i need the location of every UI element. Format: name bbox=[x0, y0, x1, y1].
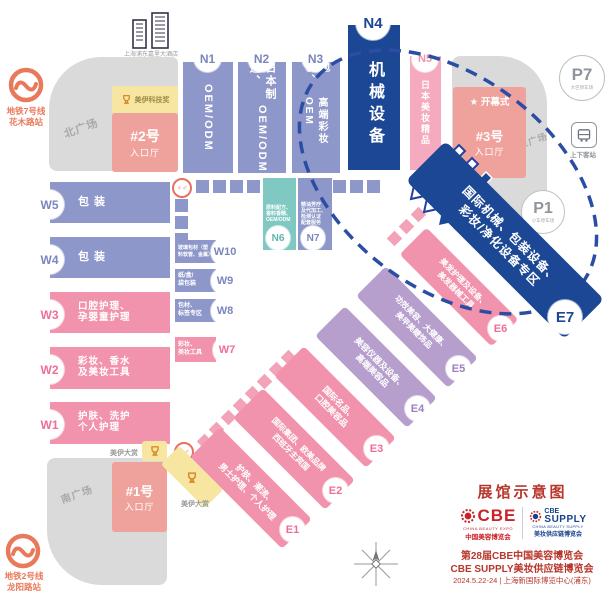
hall-circle-n2: N2 bbox=[248, 45, 275, 72]
exhibition-map: 北广场 南广场 东广场 上海浦东嘉里大酒店 地铁7号线 花木路站 地铁2号线 龙… bbox=[0, 0, 609, 608]
hall-circle-w2: W2 bbox=[35, 355, 64, 384]
booth-diamond bbox=[387, 231, 403, 247]
parking-p1-note: 小车停车场 bbox=[532, 218, 555, 224]
award-grand-box-w bbox=[142, 441, 167, 461]
cbe-supply-logo: CBE SUPPLY CHINA BEAUTY SUPPLY 美妆供应链博览会 bbox=[529, 508, 586, 538]
hall-circle-e2: E2 bbox=[323, 478, 348, 503]
logo-row: CBE CHINA BEAUTY EXPO 中国美容博览会 CBE SUPPLY… bbox=[449, 502, 597, 544]
hall-circle-n1: N1 bbox=[194, 45, 221, 72]
entrance-1-number: #1号 bbox=[112, 481, 167, 500]
booth-square bbox=[350, 180, 363, 193]
hall-bar-w7: 彩妆、 美妆工具 bbox=[175, 337, 216, 362]
hall-circle-e6: E6 bbox=[488, 316, 513, 341]
hall-circle-n7: N7 bbox=[301, 226, 325, 250]
hotel-icon bbox=[130, 11, 172, 49]
entrance-3-label: 入口厅 bbox=[453, 145, 526, 158]
hall-bar-w2: 彩妆、香水 及美妆工具 bbox=[50, 347, 170, 389]
hall-circle-w1: W1 bbox=[35, 410, 64, 439]
cbe-lion-icon bbox=[460, 508, 476, 524]
footer-line3: 2024.5.22-24 | 上海新国际博览中心(浦东) bbox=[436, 575, 608, 586]
trophy-icon bbox=[186, 471, 199, 484]
entrance-hall-2: #2号 入口厅 bbox=[112, 113, 178, 172]
entrance-1-label: 入口厅 bbox=[112, 500, 167, 513]
booth-square bbox=[196, 180, 209, 193]
pickup-zone-icon bbox=[571, 122, 597, 148]
hall-bar-n3: 包装、 高端彩妆OEM bbox=[292, 62, 340, 173]
hall-circle-w10: W10 bbox=[211, 238, 239, 266]
hall-bar-w1: 护肤、洗护 个人护理 bbox=[50, 402, 170, 444]
footer-line2: CBE SUPPLY美妆供应链博览会 bbox=[436, 560, 608, 575]
booth-square bbox=[230, 180, 243, 193]
hall-circle-w8: W8 bbox=[211, 297, 239, 325]
compass-icon bbox=[352, 540, 400, 588]
metro-line2-badge bbox=[5, 533, 41, 569]
hall-circle-n3: N3 bbox=[302, 45, 329, 72]
award-tech-box: 美伊科技奖 bbox=[112, 86, 178, 113]
booth-square bbox=[175, 199, 188, 212]
hall-circle-w9: W9 bbox=[211, 267, 239, 295]
metro-line7-badge bbox=[8, 67, 44, 103]
hall-circle-w4: W4 bbox=[35, 245, 64, 274]
logo-divider bbox=[522, 507, 523, 539]
hall-bar-w8: 包材、 标签专区 bbox=[175, 299, 216, 322]
hall-circle-n4: N4 bbox=[356, 6, 390, 40]
entrance-2-label: 入口厅 bbox=[112, 146, 178, 159]
entrance-hall-1: #1号 入口厅 bbox=[112, 462, 167, 532]
metro-icon bbox=[5, 533, 41, 569]
metro-line2-label: 地铁2号线 龙阳路站 bbox=[0, 571, 48, 593]
hall-circle-e4: E4 bbox=[405, 396, 430, 421]
page-title: 展馆示意图 bbox=[445, 481, 600, 502]
parking-p7: P7 大巴停车场 bbox=[559, 55, 605, 101]
booth-square bbox=[333, 180, 346, 193]
booth-square bbox=[247, 180, 260, 193]
award-grand-label-w: 美伊大赏 bbox=[110, 448, 138, 458]
hall-circle-n6: N6 bbox=[266, 226, 290, 250]
hotel-label: 上海浦东嘉里大酒店 bbox=[116, 49, 186, 58]
trophy-icon bbox=[121, 94, 132, 105]
hall-bar-w3: 口腔护理、 孕婴童护理 bbox=[50, 292, 170, 333]
parking-p7-note: 大巴停车场 bbox=[571, 85, 594, 91]
hall-bar-w4: 包 装 bbox=[50, 237, 170, 278]
hall-circle-e1: E1 bbox=[280, 517, 305, 542]
opening-ceremony-label: ★ 开幕式 bbox=[453, 94, 526, 108]
hall-circle-e7: E7 bbox=[548, 300, 582, 334]
hall-circle-n5: N5 bbox=[412, 46, 438, 72]
booth-diamond bbox=[399, 219, 415, 235]
hall-circle-w5: W5 bbox=[35, 190, 64, 219]
metro-icon bbox=[8, 67, 44, 103]
hall-circle-e3: E3 bbox=[364, 436, 389, 461]
metro-line7-label: 地铁7号线 花木路站 bbox=[2, 106, 50, 128]
hall-bar-w9: 纸/盒/ 袋包装 bbox=[175, 269, 216, 292]
hall-circle-e5: E5 bbox=[446, 356, 471, 381]
trophy-icon bbox=[149, 445, 161, 457]
booth-square bbox=[367, 180, 380, 193]
entrance-2-number: #2号 bbox=[112, 126, 178, 146]
hall-bar-w5: 包 装 bbox=[50, 182, 170, 223]
booth-diamond bbox=[411, 207, 427, 223]
hall-bar-n1: OEM/ODM bbox=[183, 62, 233, 173]
supply-lion-icon bbox=[529, 510, 542, 523]
booth-square bbox=[175, 216, 188, 229]
cbe-logo: CBE CHINA BEAUTY EXPO 中国美容博览会 bbox=[460, 506, 517, 541]
hall-circle-w7: W7 bbox=[213, 336, 241, 364]
bus-icon bbox=[576, 127, 592, 143]
booth-diamond bbox=[257, 374, 273, 390]
restroom-icon: ♀♂ bbox=[172, 178, 192, 198]
entrance-3-number: #3号 bbox=[453, 126, 526, 145]
hall-circle-w3: W3 bbox=[35, 300, 64, 329]
hall-bar-n2: 日本制造、 OEM/ODM bbox=[238, 62, 286, 173]
award-tech-label: 美伊科技奖 bbox=[135, 95, 170, 105]
hall-bar-w10: 玻璃包材（塑 料软管、金属） bbox=[175, 240, 216, 263]
hall-bar-n4: 机械设备 bbox=[348, 25, 400, 170]
booth-square bbox=[213, 180, 226, 193]
award-grand-label-s: 美伊大赏 bbox=[181, 499, 209, 509]
pickup-zone-label: 上下客站 bbox=[560, 149, 606, 159]
